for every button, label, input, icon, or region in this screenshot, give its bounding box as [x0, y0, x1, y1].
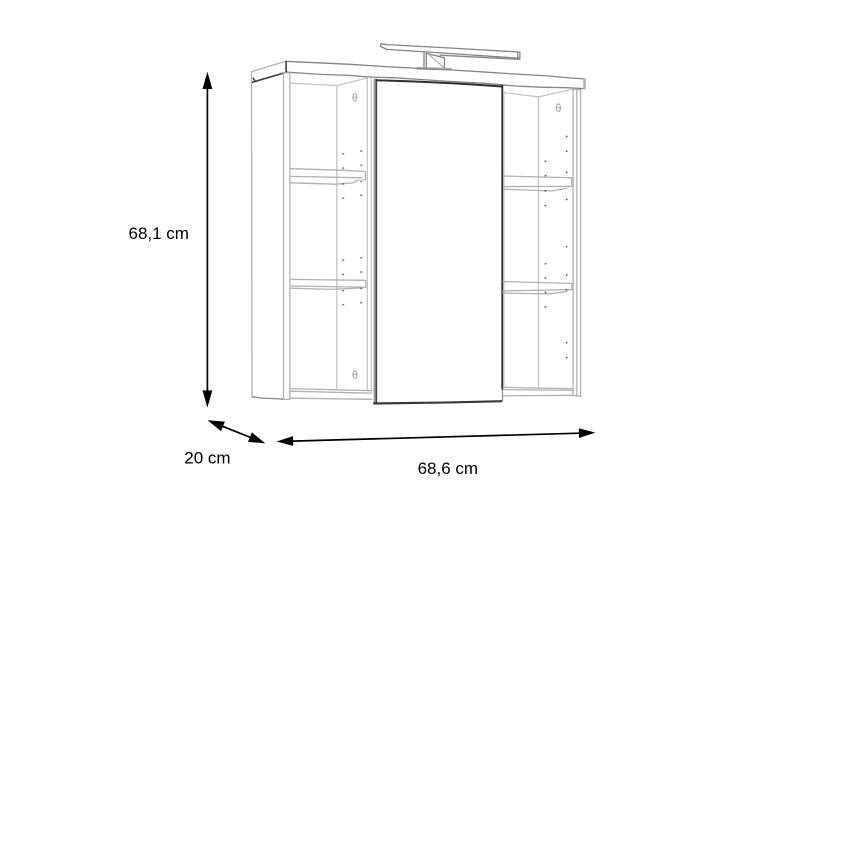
svg-text:20 cm: 20 cm	[184, 448, 230, 467]
svg-text:68,6 cm: 68,6 cm	[418, 459, 478, 478]
svg-text:68,1 cm: 68,1 cm	[129, 224, 189, 243]
